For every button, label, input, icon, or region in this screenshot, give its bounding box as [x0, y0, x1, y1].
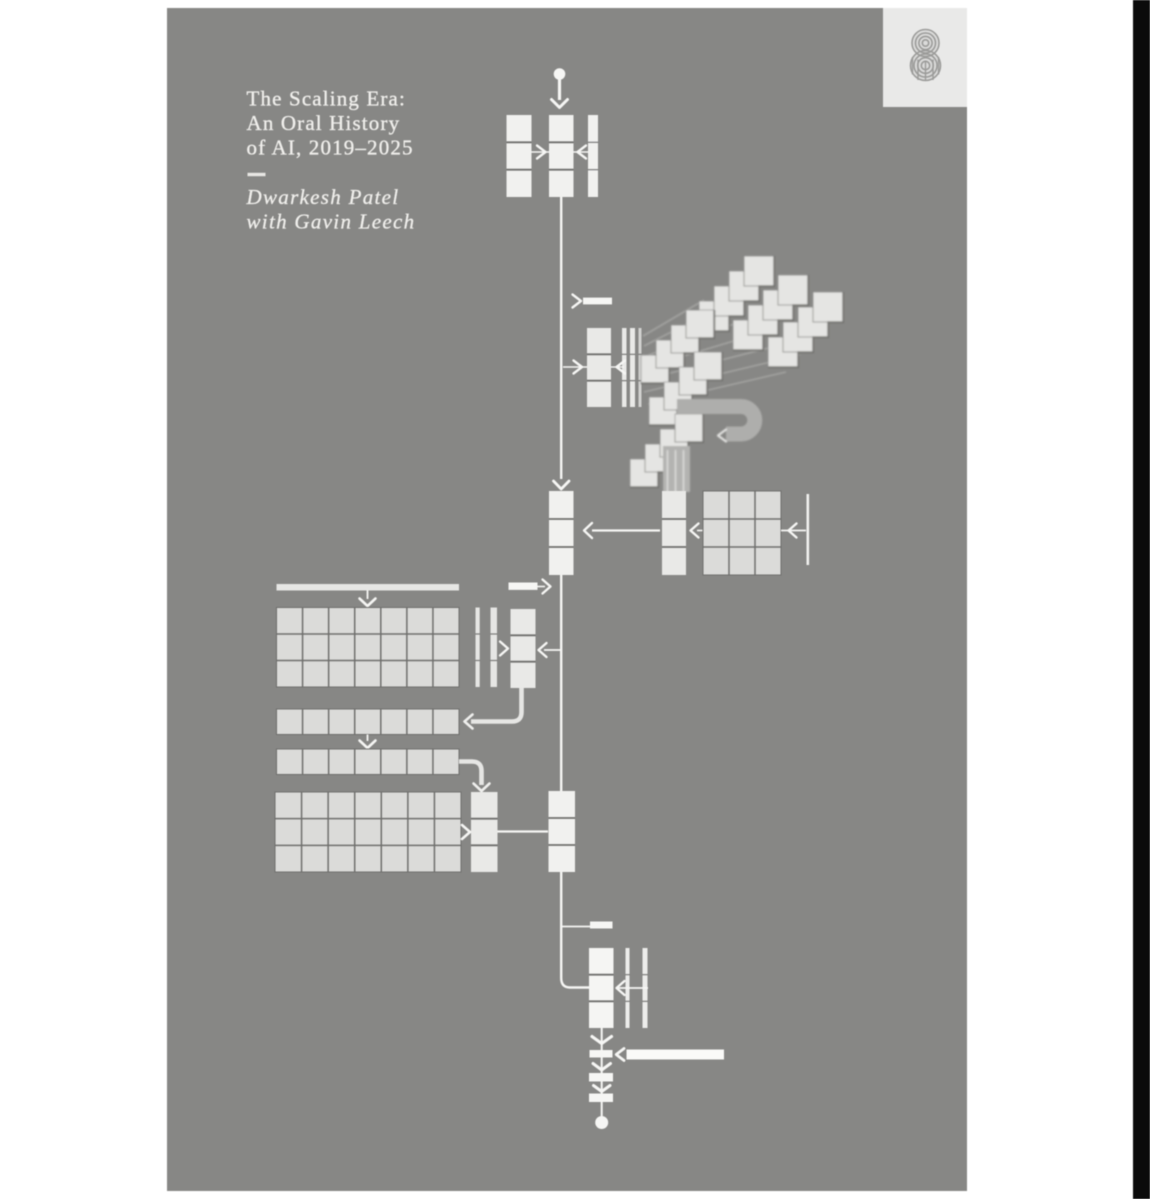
svg-text:with Gavin Leech: with Gavin Leech: [247, 210, 416, 234]
svg-text:The Scaling Era:: The Scaling Era:: [247, 87, 407, 111]
svg-text:of AI, 2019–2025: of AI, 2019–2025: [247, 136, 414, 160]
svg-text:Dwarkesh Patel: Dwarkesh Patel: [246, 185, 400, 209]
svg-text:An Oral History: An Oral History: [247, 111, 401, 135]
